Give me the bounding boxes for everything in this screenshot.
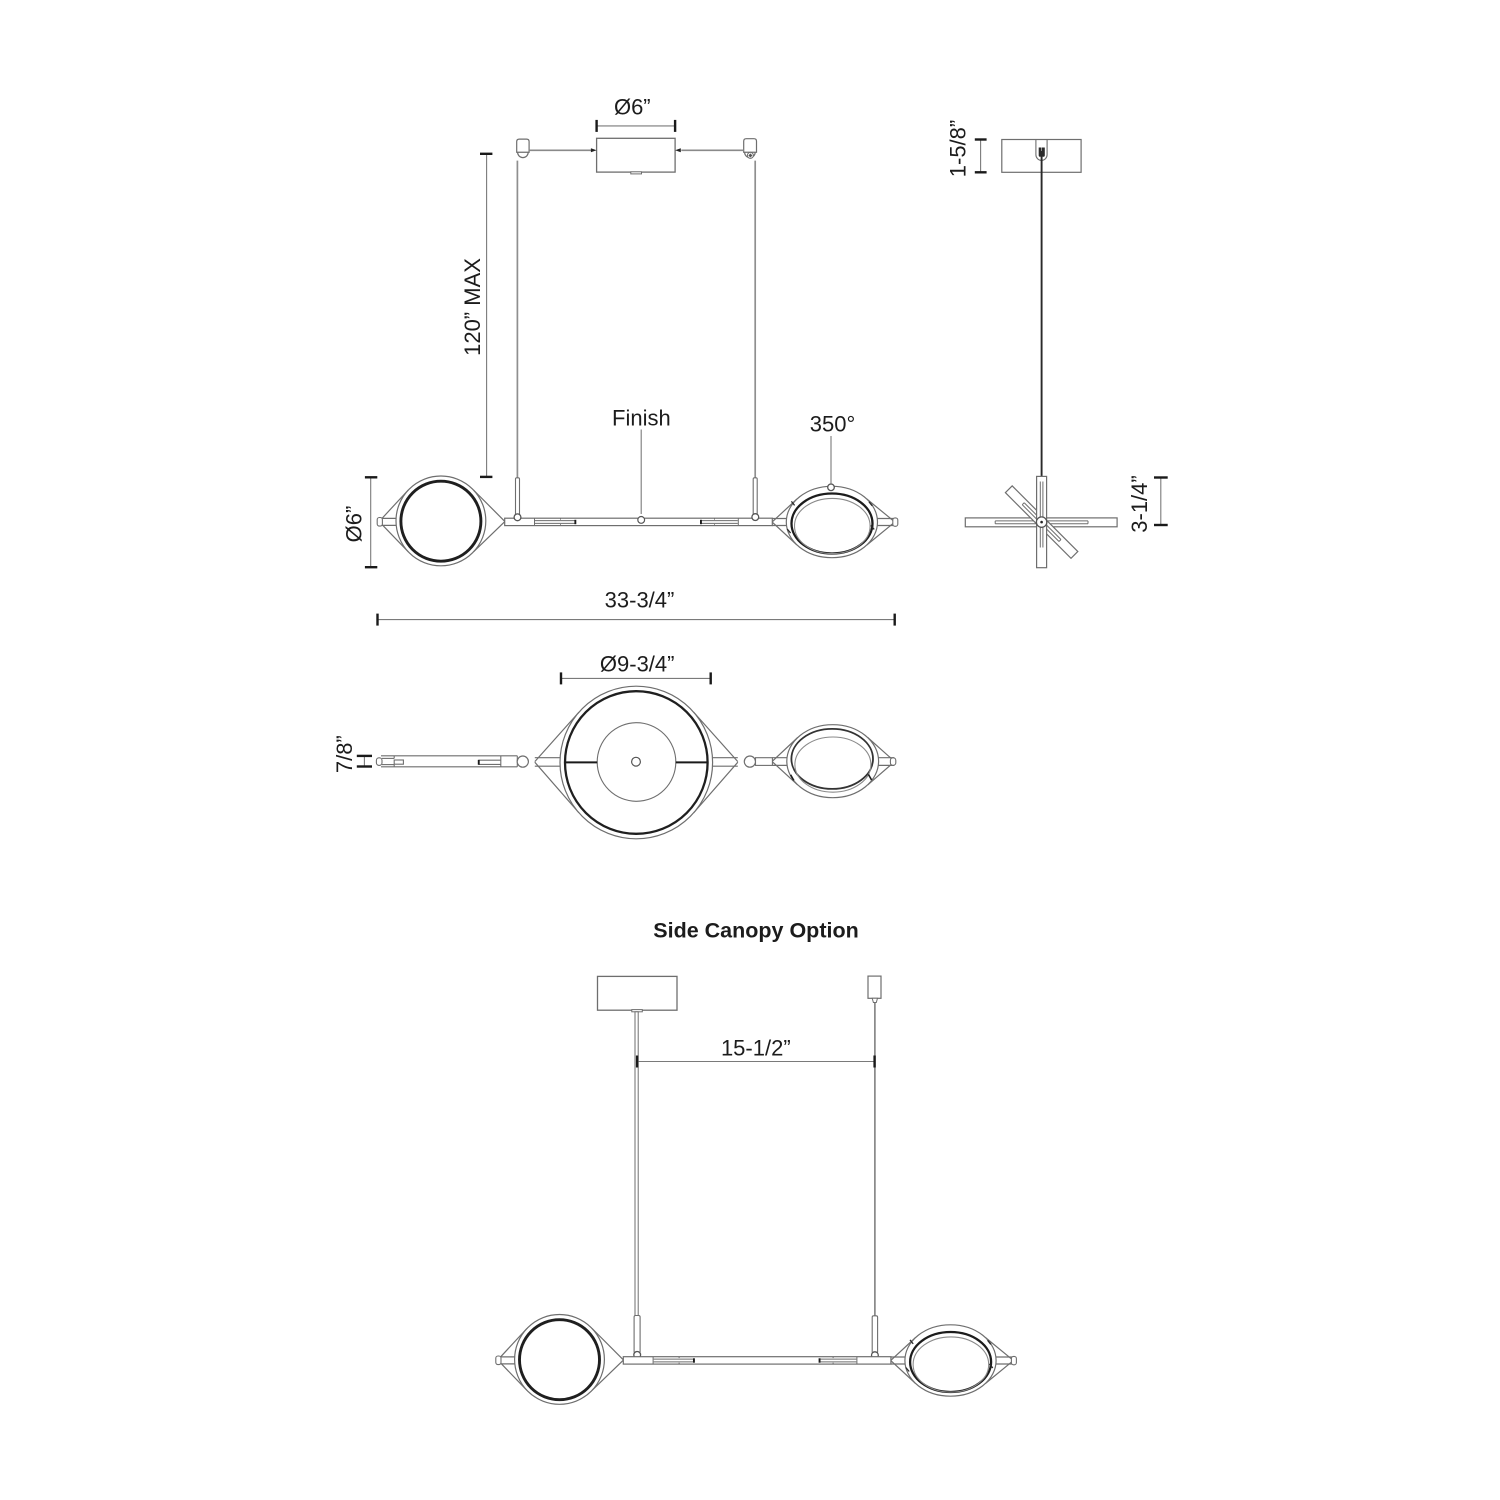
svg-text:350°: 350°: [810, 412, 856, 437]
svg-text:120” MAX: 120” MAX: [460, 258, 485, 356]
svg-text:1-5/8”: 1-5/8”: [946, 120, 971, 177]
svg-text:33-3/4”: 33-3/4”: [605, 587, 675, 612]
svg-text:15-1/2”: 15-1/2”: [721, 1036, 791, 1061]
svg-text:Ø6”: Ø6”: [342, 506, 367, 543]
svg-text:Finish: Finish: [612, 406, 671, 431]
svg-text:3-1/4”: 3-1/4”: [1127, 475, 1152, 532]
svg-text:7/8”: 7/8”: [332, 735, 357, 773]
svg-text:Ø9-3/4”: Ø9-3/4”: [600, 651, 675, 676]
svg-text:Ø6”: Ø6”: [614, 94, 651, 119]
svg-text:Side Canopy Option: Side Canopy Option: [653, 918, 858, 942]
